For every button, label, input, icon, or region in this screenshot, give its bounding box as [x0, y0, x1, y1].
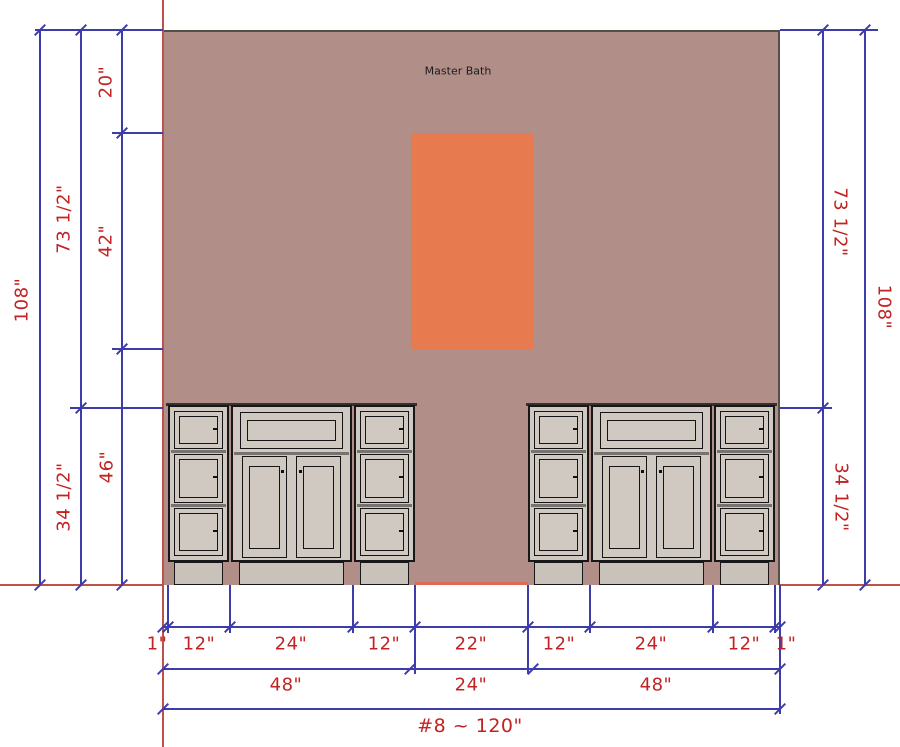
cabinet-door[interactable]: [602, 456, 647, 558]
door-panel: [663, 466, 694, 549]
dim-line-20-42-46-left: [121, 30, 123, 585]
dim-label-row2: 24": [455, 675, 488, 696]
cabinet-door[interactable]: [242, 456, 287, 558]
floor-line-accent: [415, 582, 528, 585]
door-panel: [303, 466, 334, 549]
drawer-panel: [247, 420, 336, 441]
drawer-panel: [179, 459, 218, 498]
dim-label-row1: 1": [147, 634, 168, 655]
dim-label-row1: 12": [368, 634, 401, 655]
drawer-front[interactable]: [534, 508, 583, 556]
extension-line: [70, 407, 163, 409]
toe-kick: [239, 562, 344, 585]
dim-label-row1: 1": [776, 634, 797, 655]
drawer-front[interactable]: [360, 411, 409, 449]
drawer-front[interactable]: [360, 454, 409, 503]
drawer-bank-cabinet[interactable]: [714, 405, 775, 562]
dim-line-bottom-row2: [163, 668, 780, 670]
drawer-front[interactable]: [534, 411, 583, 449]
floor-construction-line: [780, 584, 900, 586]
drawer-front[interactable]: [174, 508, 223, 556]
cabinet-rail: [594, 452, 709, 455]
cabinet-rail: [234, 452, 349, 455]
dim-line-108-left: [39, 30, 41, 585]
dim-label-46: 46": [97, 451, 118, 484]
knob-icon: [399, 428, 404, 430]
cabinet-rail: [171, 450, 226, 453]
knob-icon: [213, 428, 218, 430]
toe-kick: [174, 562, 223, 585]
dim-label-row1: 12": [728, 634, 761, 655]
dim-label-73half-left: 73 1/2": [54, 184, 75, 253]
dim-label-34half-right: 34 1/2": [831, 462, 852, 531]
toe-kick: [599, 562, 704, 585]
dim-label-42: 42": [96, 225, 117, 258]
room-label: Master Bath: [425, 65, 492, 78]
elevation-canvas: Master Bath: [0, 0, 900, 747]
dim-label-34half-left: 34 1/2": [54, 462, 75, 531]
drawer-bank-cabinet[interactable]: [354, 405, 415, 562]
extension-line: [35, 29, 163, 31]
drawer-panel: [539, 459, 578, 498]
dim-label-row2: 48": [270, 675, 303, 696]
drawer-front[interactable]: [534, 454, 583, 503]
dim-line-73-34-right: [822, 30, 824, 585]
knob-icon: [213, 530, 218, 532]
dim-label-row1: 24": [275, 634, 308, 655]
knob-icon: [299, 470, 302, 473]
knob-icon: [573, 476, 578, 478]
cabinet-rail: [717, 504, 772, 507]
knob-icon: [759, 428, 764, 430]
dim-line-bottom-row1: [163, 626, 780, 628]
dim-label-20: 20": [96, 66, 117, 99]
cabinet-rail: [357, 450, 412, 453]
knob-icon: [281, 470, 284, 473]
dim-label-row1: 12": [183, 634, 216, 655]
toe-kick: [720, 562, 769, 585]
cabinet-rail: [531, 450, 586, 453]
window[interactable]: [411, 133, 533, 350]
knob-icon: [573, 428, 578, 430]
drawer-bank-cabinet[interactable]: [168, 405, 229, 562]
toe-kick: [360, 562, 409, 585]
dim-line-73-34-left: [80, 30, 82, 585]
drawer-panel: [725, 513, 764, 551]
dim-label-row1: 12": [543, 634, 576, 655]
drawer-front[interactable]: [720, 454, 769, 503]
drawer-front[interactable]: [720, 508, 769, 556]
dim-line-bottom-row3: [163, 708, 780, 710]
knob-icon: [399, 476, 404, 478]
knob-icon: [759, 530, 764, 532]
cabinet-rail: [171, 504, 226, 507]
drawer-panel: [539, 513, 578, 551]
extension-line: [414, 585, 416, 674]
knob-icon: [759, 476, 764, 478]
knob-icon: [213, 476, 218, 478]
drawer-panel: [365, 459, 404, 498]
false-drawer-front[interactable]: [240, 412, 343, 449]
drawer-front[interactable]: [174, 454, 223, 503]
dim-line-108-right: [864, 30, 866, 585]
cabinet-door[interactable]: [296, 456, 341, 558]
drawer-panel: [607, 420, 696, 441]
dim-label-108-right: 108": [874, 285, 895, 330]
sink-base-cabinet[interactable]: [591, 405, 712, 562]
false-drawer-front[interactable]: [600, 412, 703, 449]
extension-line: [527, 585, 529, 674]
cabinet-door[interactable]: [656, 456, 701, 558]
door-panel: [609, 466, 640, 549]
toe-kick: [534, 562, 583, 585]
drawer-bank-cabinet[interactable]: [528, 405, 589, 562]
drawer-panel: [725, 459, 764, 498]
cabinet-rail: [531, 504, 586, 507]
dim-label-73half-right: 73 1/2": [830, 187, 851, 256]
dim-label-total-run: #8 ~ 120": [417, 715, 523, 737]
cabinet-rail: [357, 504, 412, 507]
knob-icon: [399, 530, 404, 532]
dim-label-row2: 48": [640, 675, 673, 696]
cabinet-rail: [717, 450, 772, 453]
drawer-front[interactable]: [174, 411, 223, 449]
drawer-panel: [365, 513, 404, 551]
door-panel: [249, 466, 280, 549]
dim-label-108-left: 108": [12, 278, 33, 323]
knob-icon: [641, 470, 644, 473]
knob-icon: [573, 530, 578, 532]
dim-label-row1: 22": [455, 634, 488, 655]
dim-label-row1: 24": [635, 634, 668, 655]
drawer-front[interactable]: [720, 411, 769, 449]
knob-icon: [659, 470, 662, 473]
drawer-front[interactable]: [360, 508, 409, 556]
sink-base-cabinet[interactable]: [231, 405, 352, 562]
drawer-panel: [179, 513, 218, 551]
